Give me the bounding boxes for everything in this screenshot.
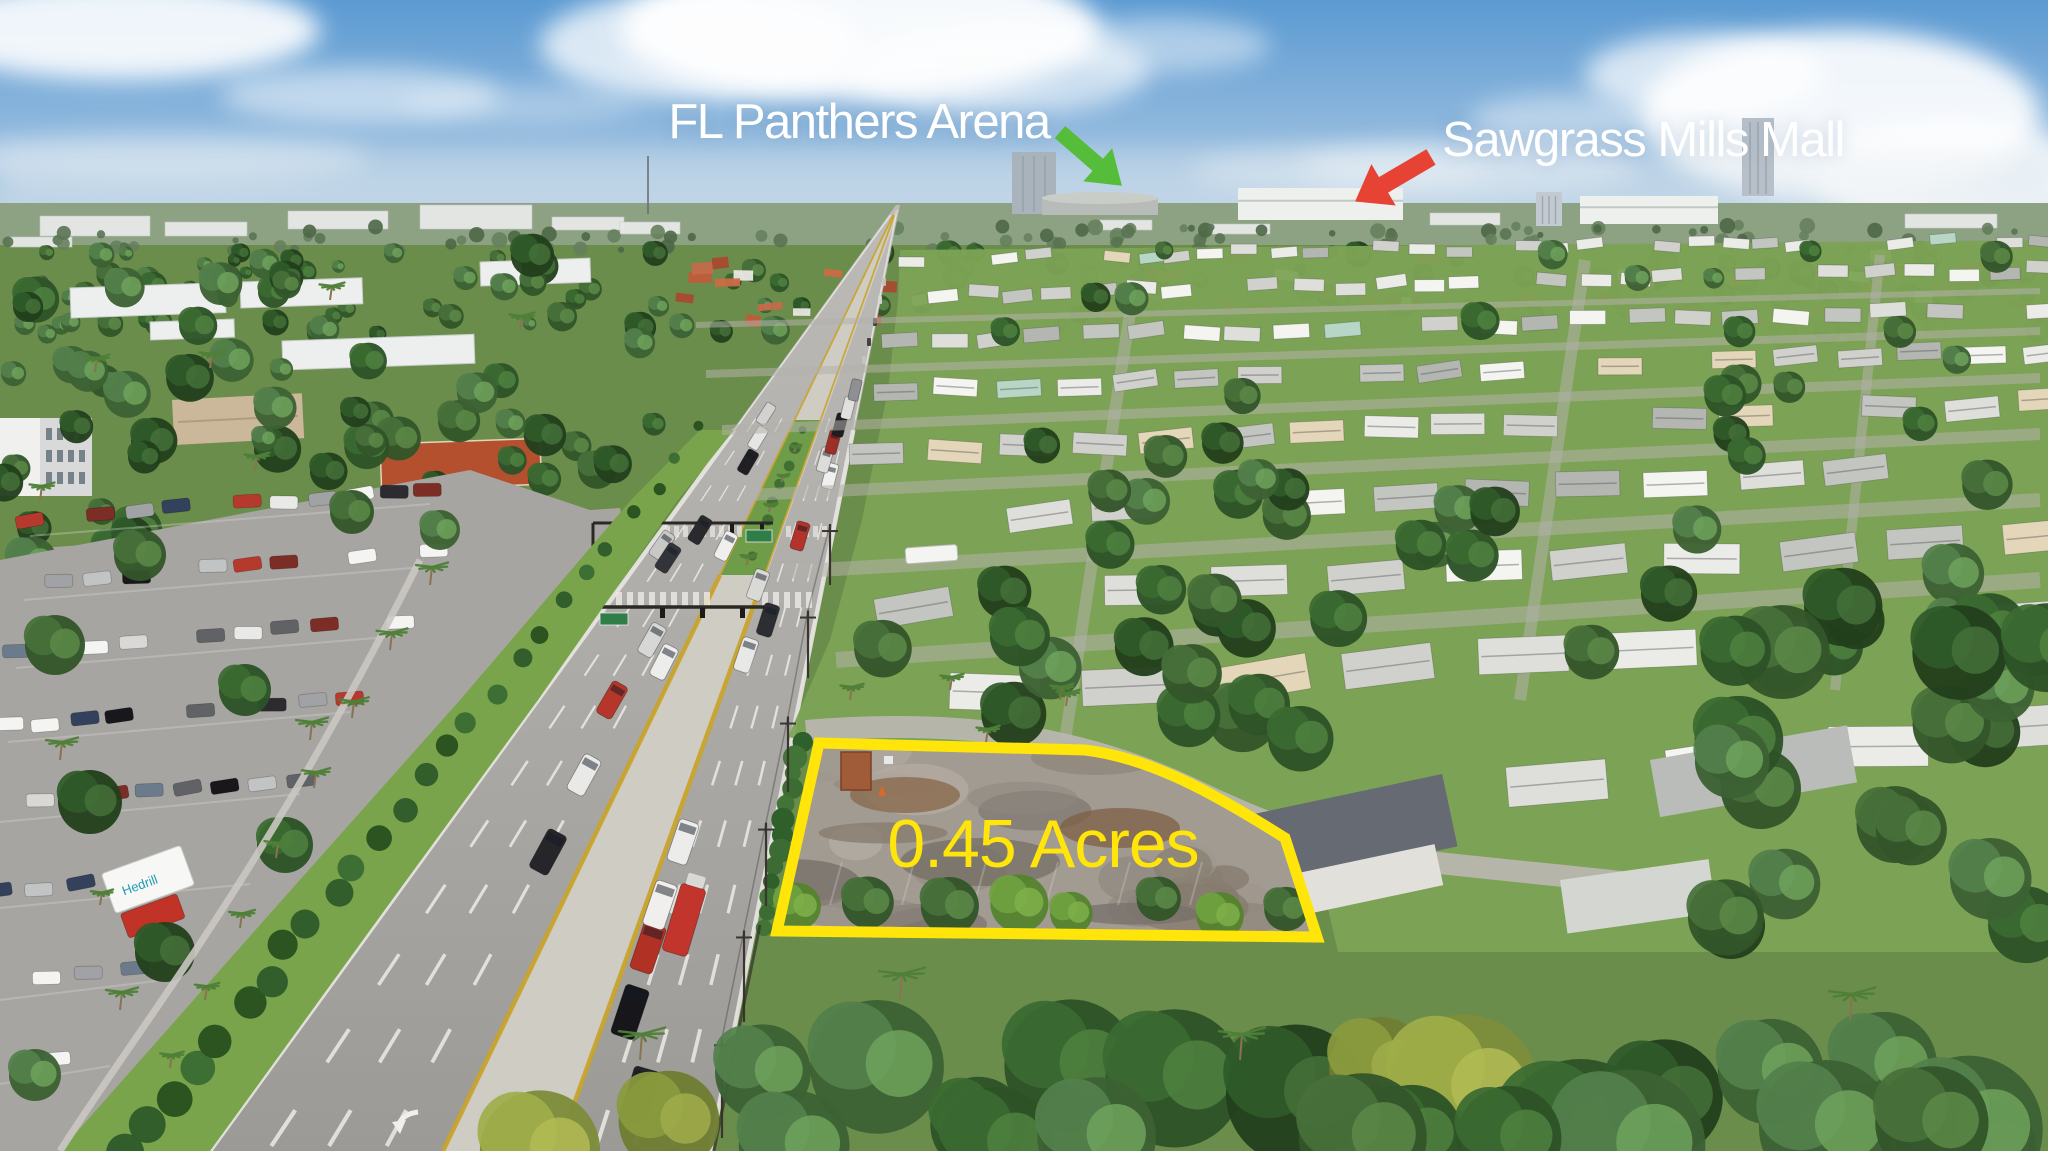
lot-acreage-label: 0.45 Acres	[887, 810, 1198, 878]
aerial-photo-stage: Hedrill FL Panthers Arena Sawgrass Mills…	[0, 0, 2048, 1151]
arena-arrow-icon	[1046, 115, 1137, 202]
arena-label: FL Panthers Arena	[668, 98, 1049, 147]
annotation-overlay	[0, 0, 2048, 1151]
mall-arrow-icon	[1343, 136, 1443, 222]
mall-label: Sawgrass Mills Mall	[1442, 116, 1844, 165]
